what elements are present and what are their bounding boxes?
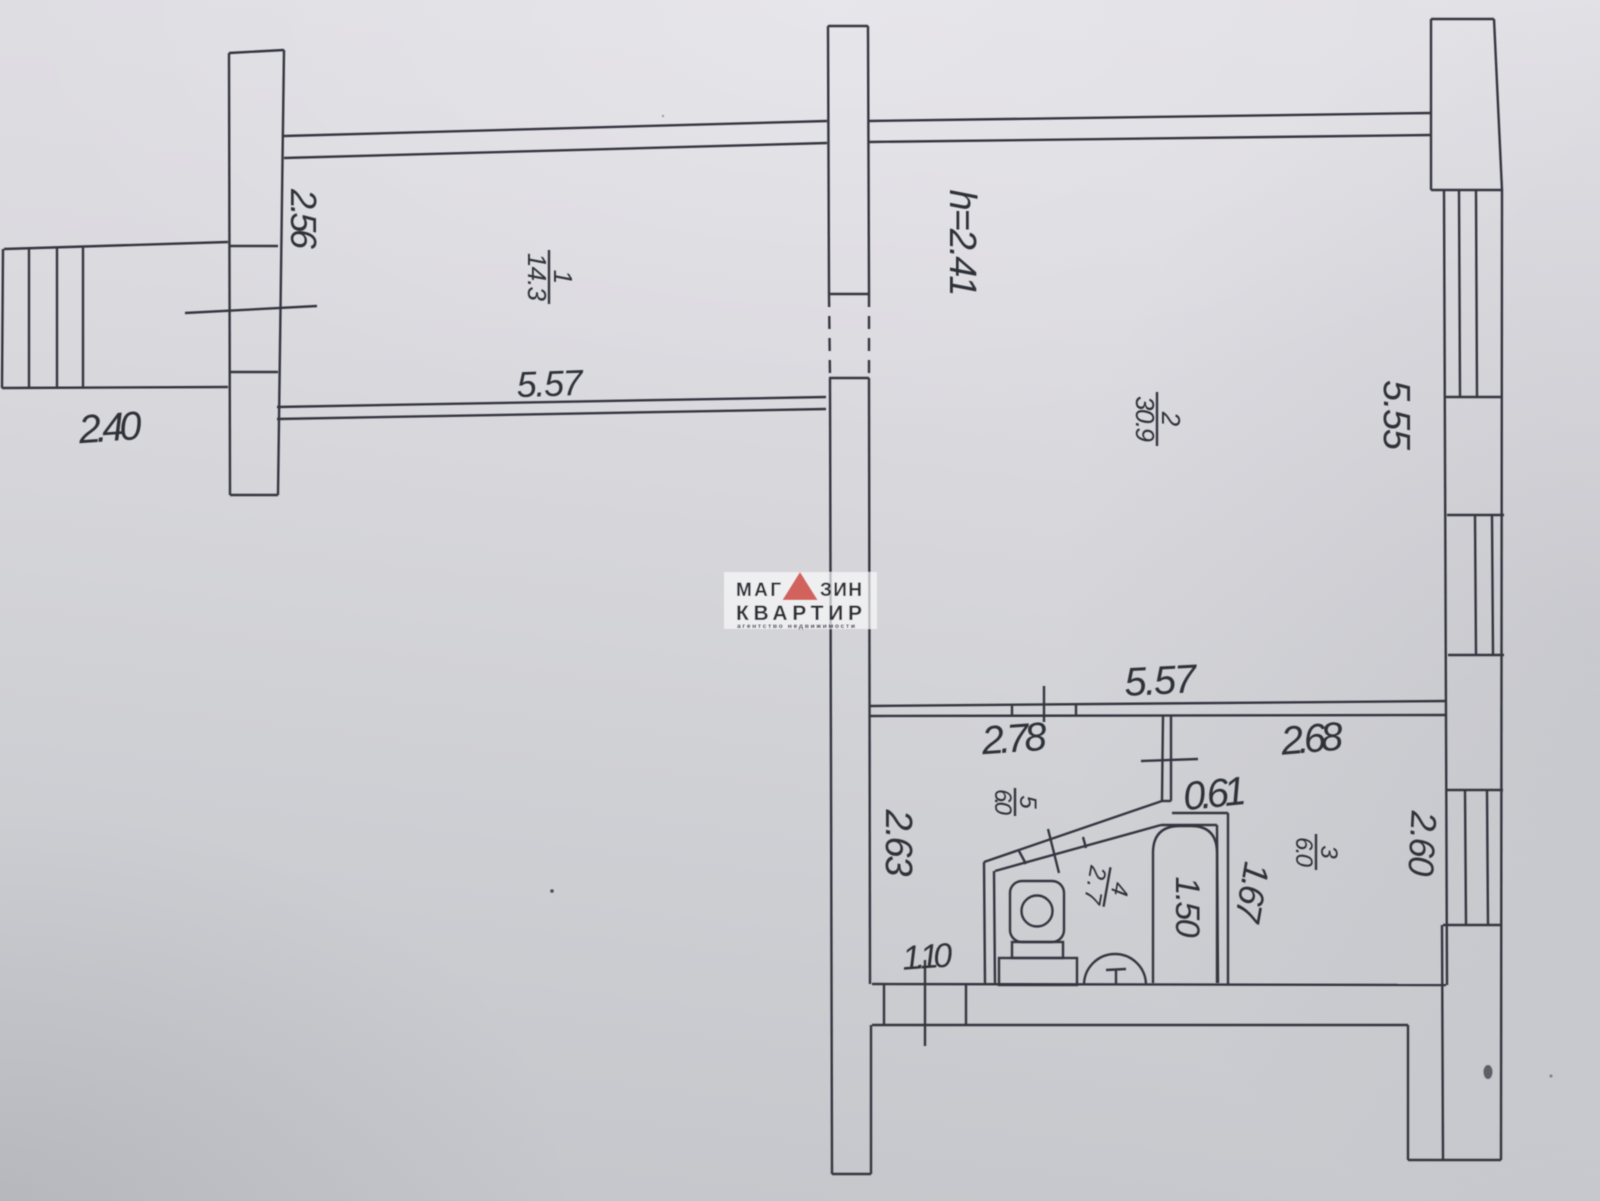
svg-text:6.0: 6.0 [989, 789, 1016, 816]
svg-text:ЗИН: ЗИН [820, 580, 862, 601]
svg-text:0.61: 0.61 [1181, 769, 1248, 819]
svg-text:5.57: 5.57 [516, 362, 585, 405]
svg-text:1.10: 1.10 [901, 936, 954, 977]
svg-text:2.68: 2.68 [1278, 714, 1345, 763]
svg-text:6.0: 6.0 [1290, 837, 1317, 868]
svg-text:h=2.41: h=2.41 [941, 190, 983, 297]
svg-text:1.67: 1.67 [1227, 859, 1278, 927]
svg-text:5.57: 5.57 [1123, 657, 1199, 705]
svg-text:2.40: 2.40 [76, 404, 143, 452]
svg-text:агентство недвижимости: агентство недвижимости [737, 623, 855, 630]
svg-text:2.63: 2.63 [877, 809, 919, 877]
svg-text:МАГ: МАГ [736, 580, 781, 601]
svg-text:30.9: 30.9 [1130, 396, 1160, 442]
svg-text:5.55: 5.55 [1375, 380, 1417, 451]
svg-text:3: 3 [1315, 845, 1342, 859]
svg-text:2.78: 2.78 [979, 715, 1049, 764]
svg-text:4: 4 [1105, 880, 1134, 898]
svg-text:2.60: 2.60 [1400, 809, 1444, 877]
svg-text:КВАРТИР: КВАРТИР [736, 602, 862, 625]
svg-text:2.7: 2.7 [1078, 863, 1112, 908]
svg-text:2.56: 2.56 [283, 188, 324, 250]
svg-text:14.3: 14.3 [522, 253, 552, 302]
svg-text:5: 5 [1014, 795, 1041, 809]
svg-text:1.50: 1.50 [1168, 877, 1206, 938]
